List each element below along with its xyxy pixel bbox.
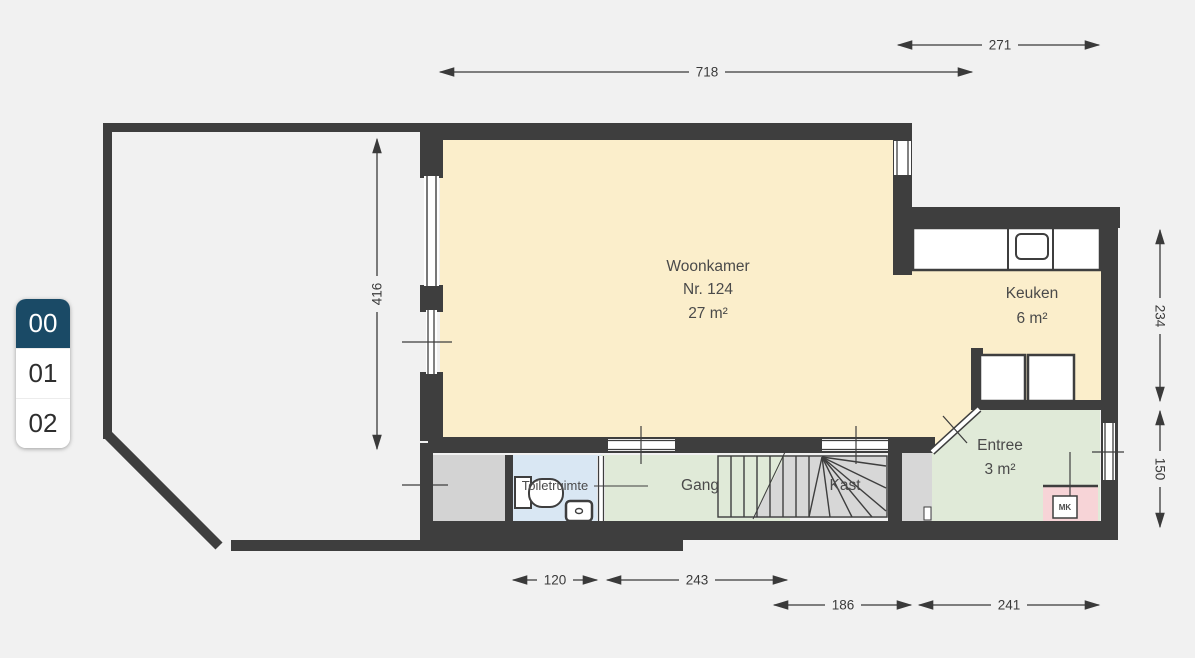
floorplan-drawing: MK Woonkamer Nr. 124 27 m² Keuken 6 m² E… (0, 0, 1195, 658)
floor-button-00[interactable]: 00 (16, 299, 70, 349)
dimension-left: 416 (369, 139, 385, 449)
floor-button-02[interactable]: 02 (16, 399, 70, 448)
kast-name: Kast (829, 477, 861, 494)
door-icon (597, 456, 605, 521)
dimension-right-bottom: 150 (1152, 411, 1168, 527)
gang-name: Gang (681, 477, 719, 494)
woonkamer-number: Nr. 124 (683, 281, 733, 298)
dimension-bottom-2-value: 243 (686, 573, 709, 588)
woonkamer-area: 27 m² (688, 305, 728, 322)
kitchen-counter-icon (913, 228, 1100, 270)
woonkamer-name: Woonkamer (666, 258, 749, 275)
entree-name: Entree (977, 437, 1023, 454)
dimension-bottom-3: 186 (774, 597, 911, 613)
dimension-top-value: 718 (696, 65, 719, 80)
dimension-top-right-value: 271 (989, 38, 1012, 53)
dimension-top: 718 (440, 64, 972, 80)
kitchen-sink-icon (1016, 234, 1048, 259)
floor-selector: 00 01 02 (16, 299, 70, 448)
keuken-name: Keuken (1006, 285, 1059, 302)
appliance-icon (1028, 355, 1074, 401)
dimension-right-top-value: 234 (1153, 305, 1168, 328)
window-icon (424, 176, 439, 286)
floor-button-01[interactable]: 01 (16, 349, 70, 399)
window-icon (894, 141, 911, 175)
dimension-bottom-1: 120 (513, 572, 597, 588)
toiletruimte-name: Toiletruimte (522, 478, 588, 493)
keuken-area: 6 m² (1017, 310, 1048, 327)
dimension-bottom-2: 243 (607, 572, 787, 588)
dimension-top-right: 271 (898, 37, 1099, 53)
dimension-bottom-4: 241 (919, 597, 1099, 613)
appliance-icon (980, 355, 1025, 401)
dimension-bottom-3-value: 186 (832, 598, 855, 613)
dimension-left-value: 416 (370, 283, 385, 306)
floorplan-viewer: MK Woonkamer Nr. 124 27 m² Keuken 6 m² E… (0, 0, 1195, 658)
entree-area: 3 m² (985, 461, 1016, 478)
woonkamer-floor (440, 140, 912, 443)
storage-floor (433, 455, 508, 521)
dimension-bottom-1-value: 120 (544, 573, 567, 588)
dimension-right-bottom-value: 150 (1153, 458, 1168, 481)
dimension-right-top: 234 (1152, 230, 1168, 401)
door-icon (924, 507, 931, 520)
meterkast-label: MK (1059, 503, 1072, 512)
dimension-bottom-4-value: 241 (998, 598, 1021, 613)
